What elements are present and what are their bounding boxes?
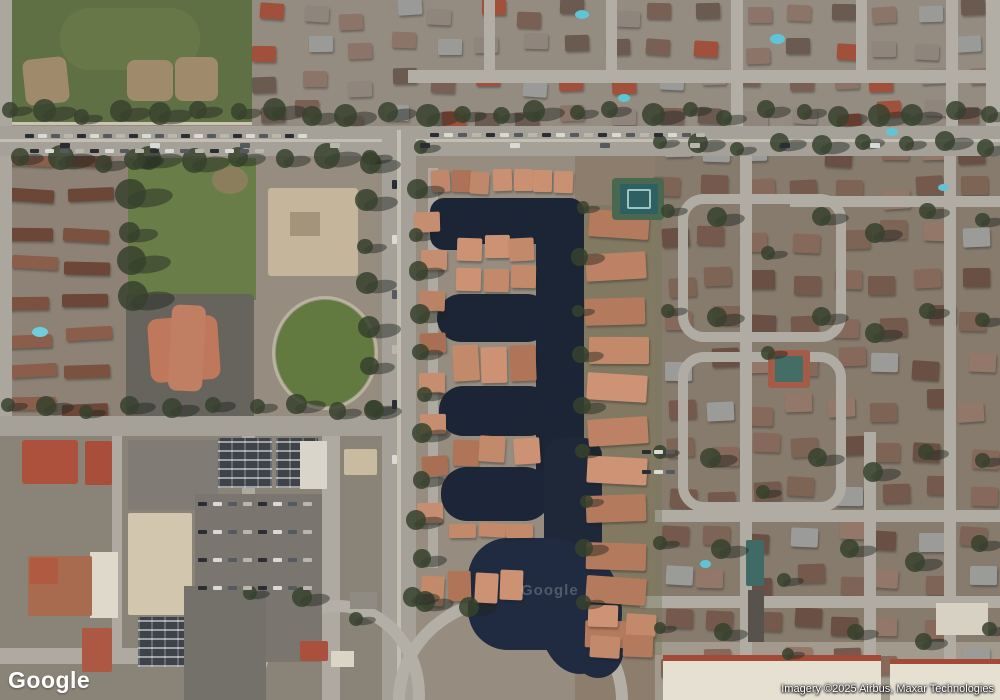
12-tree — [413, 549, 431, 567]
cars-main-road-traffic-car — [690, 143, 700, 148]
cars-road-east-row-car — [444, 133, 453, 137]
cars-road-east-row-car — [542, 133, 551, 137]
cars-field-parking-row-2-car — [180, 149, 189, 153]
cars-field-parking-row-1-car — [285, 134, 294, 138]
cars-parking-row-4-car — [273, 586, 282, 590]
27-tree — [716, 110, 732, 126]
right-res-houses-house — [868, 276, 895, 295]
7-tree — [360, 357, 378, 375]
red-roof-building-4 — [82, 628, 112, 672]
cars-main-road-traffic-car — [420, 143, 430, 148]
27-tree — [74, 109, 90, 125]
7-tree — [919, 303, 935, 319]
red-roof-building-3 — [30, 558, 58, 584]
top-street-v1 — [484, 0, 495, 70]
7-tree — [357, 239, 373, 255]
27-tree — [868, 104, 891, 127]
right-res-houses-house — [962, 228, 990, 248]
9-tree — [573, 397, 591, 415]
top-res-houses-house — [303, 70, 327, 86]
left-apartment-rows-house — [64, 365, 110, 379]
cars-vroad-traffic-car — [392, 400, 397, 409]
condo-row-north-house — [492, 168, 512, 191]
top-res-houses-house — [565, 34, 589, 51]
left-apartment-rows-house — [68, 187, 115, 202]
right-res-houses-house — [970, 566, 997, 585]
bigbox-store-roof — [128, 513, 192, 615]
left-apartment-rows-house — [63, 228, 110, 244]
tan-small-building — [344, 449, 377, 475]
pool-2 — [770, 34, 785, 44]
cars-parking-row-2-car — [273, 530, 282, 534]
top-res-houses-house — [872, 6, 897, 23]
parking-lot-c — [184, 586, 266, 700]
condo-col-east-house — [587, 416, 649, 447]
condo-row-north-house — [554, 171, 574, 194]
27-tree — [149, 102, 172, 125]
top-res-houses-house — [748, 7, 772, 23]
cars-road-east-row-car — [626, 133, 635, 137]
cars-road-east-row-car — [682, 133, 691, 137]
right-res-houses-house — [961, 176, 988, 195]
cars-parking-row-2-car — [258, 530, 267, 534]
condo-row-north-house — [470, 171, 490, 194]
cars-field-parking-row-1-car — [25, 134, 34, 138]
tennis-court-lines — [627, 189, 651, 209]
cars-road-east-row-car — [640, 133, 649, 137]
peninsula-4-houses-house — [449, 524, 476, 538]
top-res-houses-house — [339, 13, 364, 30]
cars-vroad-traffic-car — [392, 455, 397, 464]
27-tree — [601, 101, 618, 118]
12-tree — [409, 261, 428, 280]
condo-row-north-house — [514, 169, 533, 191]
cars-field-parking-row-1-car — [51, 134, 60, 138]
27-tree — [263, 98, 286, 121]
9-tree — [977, 139, 994, 156]
cars-parking-row-2-car — [213, 530, 222, 534]
5-tree — [403, 587, 422, 606]
top-street-v3 — [731, 0, 743, 128]
cars-field-parking-row-1-car — [207, 134, 216, 138]
cars-parking-row-1-car — [228, 502, 237, 506]
12-tree — [410, 304, 430, 324]
left-apartment-rows-house — [66, 325, 113, 341]
right-res-houses-house — [882, 483, 910, 503]
9-tree — [575, 539, 593, 557]
red-roof-building-1 — [22, 440, 78, 484]
cars-road-east-row-car — [598, 133, 607, 137]
cars-parking-row-4-car — [198, 586, 207, 590]
top-res-houses-house — [694, 41, 719, 58]
right-res-houses-house — [790, 527, 818, 547]
cars-field-parking-row-2-car — [195, 149, 204, 153]
cars-parking-row-1-car — [303, 502, 312, 506]
imagery-attribution: Imagery ©2025 Airbus, Maxar Technologies — [781, 683, 994, 695]
cars-road-east-row-car — [514, 133, 523, 137]
cars-main-road-traffic-car — [780, 143, 790, 148]
cars-parking-row-2-car — [303, 530, 312, 534]
right-res-houses-house — [956, 402, 984, 423]
cars-field-parking-row-1-car — [181, 134, 190, 138]
google-watermark: Google — [521, 582, 579, 599]
left-apartment-rows-house — [12, 255, 59, 270]
cars-road-east-row-car — [570, 133, 579, 137]
cars-field-parking-row-1-car — [298, 134, 307, 138]
cars-road-east-row-car — [528, 133, 537, 137]
5-tree — [349, 612, 363, 626]
cars-parking-row-3-car — [243, 558, 252, 562]
top-res-houses-house — [427, 8, 452, 25]
12-tree — [412, 344, 428, 360]
12-tree — [413, 471, 430, 488]
ring-pad-building-2 — [331, 651, 354, 667]
9-tree — [577, 201, 589, 213]
9-tree — [95, 155, 112, 172]
5-tree — [459, 597, 479, 617]
27-tree — [454, 106, 471, 123]
6-tree — [711, 539, 731, 559]
top-res-houses-house — [832, 3, 856, 19]
left-apartment-rows-house — [62, 294, 108, 308]
top-res-houses-house — [919, 6, 943, 23]
condo-col-east-house — [586, 456, 647, 486]
top-street-v2 — [606, 0, 617, 70]
cars-field-parking-row-1-car — [194, 134, 203, 138]
cars-field-parking-row-1-car — [129, 134, 138, 138]
cars-parking-row-1-car — [213, 502, 222, 506]
peninsula-1-houses-house — [456, 267, 481, 290]
solar-roof-block-1 — [218, 438, 272, 488]
condo-row-north-house — [533, 169, 552, 191]
cars-field-parking-row-2-car — [150, 149, 159, 153]
27-tree — [797, 104, 813, 120]
ring-pad-building-3 — [350, 592, 377, 609]
se-shore-condos-house — [589, 635, 620, 659]
cars-field-parking-row-1-car — [77, 134, 86, 138]
cars-field-parking-row-1-car — [246, 134, 255, 138]
red-roof-building-2 — [85, 441, 112, 485]
cars-field-parking-row-2-car — [240, 149, 249, 153]
7-tree — [865, 223, 885, 243]
lake-lobe-3 — [439, 386, 553, 436]
left-edge-street — [0, 0, 12, 436]
cars-main-road-traffic-car — [330, 143, 340, 148]
lake-lobe-4 — [441, 467, 551, 521]
7-tree — [756, 485, 770, 499]
cars-road-east-row-car — [472, 133, 481, 137]
cars-road-east-row-car — [430, 133, 439, 137]
cars-field-parking-row-2-car — [165, 149, 174, 153]
right-res-houses-house — [873, 443, 900, 462]
7-tree — [661, 204, 675, 218]
cars-field-parking-row-2-car — [90, 149, 99, 153]
cars-road-east-row-car — [612, 133, 621, 137]
cars-main-road-traffic-car — [60, 143, 70, 148]
ring-pad-building-1 — [300, 641, 328, 661]
9-tree — [855, 134, 871, 150]
peninsula-2-houses-house — [509, 345, 536, 382]
top-res-houses-house — [915, 43, 940, 60]
br-light-building — [936, 603, 988, 635]
top-res-houses-house — [645, 38, 670, 56]
cars-parking-row-4-car — [228, 586, 237, 590]
7-tree — [700, 448, 720, 468]
top-res-houses-house — [956, 35, 981, 52]
27-tree — [110, 100, 132, 122]
7-tree — [863, 462, 883, 482]
peninsula-1-houses-house — [484, 268, 510, 292]
cars-parking-row-3-car — [228, 558, 237, 562]
12-tree — [409, 228, 423, 242]
parked-car-column — [748, 590, 764, 642]
7-tree — [865, 323, 885, 343]
12-tree — [417, 387, 432, 402]
cars-right-lot-2-car — [666, 470, 675, 474]
tennis-court-east-inner — [775, 356, 803, 382]
9-tree — [276, 149, 295, 168]
cars-field-parking-row-1-car — [64, 134, 73, 138]
cars-field-parking-row-2-car — [120, 149, 129, 153]
cars-parking-row-3-car — [258, 558, 267, 562]
se-shore-condos-house — [625, 613, 656, 637]
cars-parking-row-1-car — [198, 502, 207, 506]
cars-right-lot-1-car — [642, 450, 651, 454]
cars-field-parking-row-2-car — [45, 149, 54, 153]
cars-road-east-row-car — [500, 133, 509, 137]
cars-field-parking-row-1-car — [168, 134, 177, 138]
sport-court-southeast — [746, 540, 764, 586]
cars-parking-row-4-car — [288, 586, 297, 590]
cars-field-parking-row-1-car — [272, 134, 281, 138]
cars-road-east-row-car — [696, 133, 705, 137]
top-res-houses-house — [745, 47, 770, 64]
cars-right-lot-1-car — [654, 450, 663, 454]
peninsula-4-houses-house — [478, 522, 506, 537]
top-res-houses-house — [348, 80, 373, 97]
cars-field-parking-row-1-car — [116, 134, 125, 138]
main-road-h-median — [0, 139, 1000, 142]
9-tree — [572, 346, 589, 363]
left-apartment-rows-house — [8, 187, 55, 203]
cars-field-parking-row-2-car — [225, 149, 234, 153]
cars-parking-row-3-car — [303, 558, 312, 562]
circular-park-path — [272, 296, 378, 410]
6-tree — [714, 623, 732, 641]
top-res-houses-house — [523, 33, 547, 50]
10-tree — [79, 405, 93, 419]
cars-parking-row-1-car — [288, 502, 297, 506]
top-res-houses-house — [309, 36, 333, 52]
cars-vroad-traffic-car — [392, 235, 397, 244]
pool-4 — [938, 184, 949, 191]
right-res-houses-house — [871, 352, 898, 372]
top-res-houses-house — [872, 41, 896, 57]
27-tree — [493, 107, 510, 124]
right-res-houses-house — [700, 175, 728, 195]
left-road-h416 — [0, 416, 384, 436]
left-apartment-rows-house — [7, 228, 53, 242]
cars-field-parking-row-2-car — [30, 149, 39, 153]
baseball-diamond-2 — [127, 60, 173, 101]
google-logo[interactable]: Google — [8, 667, 90, 694]
cars-right-lot-1-car — [666, 450, 675, 454]
peninsula-1-houses-house — [456, 238, 482, 262]
27-tree — [302, 106, 322, 126]
satellite-map-canvas[interactable]: Google Google Imagery ©2025 Airbus, Maxa… — [0, 0, 1000, 700]
top-res-houses-house — [397, 0, 422, 16]
pool-1 — [575, 10, 589, 19]
27-tree — [334, 104, 357, 127]
top-res-houses-house — [786, 38, 810, 54]
church-roof-wing — [168, 304, 206, 392]
cars-field-parking-row-2-car — [105, 149, 114, 153]
cars-road-east-row-car — [458, 133, 467, 137]
right-res-houses-house — [696, 569, 724, 589]
white-roof-roadside — [300, 441, 327, 489]
27-tree — [416, 104, 439, 127]
cars-road-east-row-car — [668, 133, 677, 137]
right-res-houses-house — [838, 347, 866, 367]
cars-field-parking-row-1-car — [142, 134, 151, 138]
cars-main-road-traffic-car — [510, 143, 520, 148]
se-shore-condos-house — [623, 634, 654, 657]
cars-parking-row-2-car — [243, 530, 252, 534]
cars-parking-row-3-car — [273, 558, 282, 562]
6-tree — [982, 622, 996, 636]
cars-vroad-traffic-car — [392, 180, 397, 189]
cars-main-road-traffic-car — [150, 143, 160, 148]
cars-parking-row-4-car — [258, 586, 267, 590]
top-res-houses-house — [787, 4, 812, 21]
left-apartment-rows-house — [6, 335, 52, 350]
cars-field-parking-row-2-car — [255, 149, 264, 153]
9-tree — [11, 148, 29, 166]
right-res-houses-house — [666, 565, 694, 585]
cars-field-parking-row-1-car — [233, 134, 242, 138]
right-res-houses-house — [968, 352, 996, 372]
right-res-houses-house — [870, 403, 897, 422]
cars-field-parking-row-2-car — [135, 149, 144, 153]
cars-parking-row-3-car — [213, 558, 222, 562]
cars-parking-row-3-car — [198, 558, 207, 562]
south-arc-condos-house — [474, 572, 499, 603]
peninsula-1-houses-house — [509, 238, 535, 262]
7-tree — [919, 203, 935, 219]
pool-5 — [32, 327, 48, 337]
cars-field-parking-row-2-car — [210, 149, 219, 153]
white-l-building — [90, 552, 118, 618]
27-tree — [189, 101, 207, 119]
top-res-houses-house — [252, 76, 277, 93]
5-tree — [119, 222, 140, 243]
cars-road-east-row-car — [584, 133, 593, 137]
peninsula-1-houses-house — [485, 235, 510, 258]
cars-parking-row-1-car — [258, 502, 267, 506]
7-tree — [356, 272, 378, 294]
27-tree — [683, 102, 698, 117]
pool-7 — [618, 94, 630, 102]
27-tree — [231, 103, 248, 120]
10-tree — [120, 396, 139, 415]
cars-parking-row-2-car — [198, 530, 207, 534]
top-res-houses-house — [304, 6, 329, 23]
cars-vroad-traffic-car — [392, 290, 397, 299]
top-res-houses-house — [517, 12, 542, 29]
cars-field-parking-row-1-car — [103, 134, 112, 138]
top-res-houses-house — [616, 11, 641, 28]
5-tree — [117, 246, 146, 275]
cars-main-road-traffic-car — [600, 143, 610, 148]
cars-right-lot-2-car — [642, 470, 651, 474]
10-tree — [250, 399, 265, 414]
top-res-houses-house — [961, 0, 986, 16]
27-tree — [523, 100, 545, 122]
5-tree — [115, 179, 145, 209]
top-res-houses-house — [438, 39, 462, 55]
cars-field-parking-row-1-car — [220, 134, 229, 138]
9-tree — [899, 136, 914, 151]
top-street-horizontal — [408, 70, 1000, 83]
peninsula-3-houses-house — [513, 437, 541, 465]
peninsula-3-houses-house — [478, 436, 506, 464]
7-tree — [362, 150, 378, 166]
10-tree — [329, 402, 346, 419]
right-res-houses-house — [794, 607, 822, 627]
top-res-houses-house — [259, 2, 284, 20]
cars-road-east-row-car — [486, 133, 495, 137]
7-tree — [661, 304, 675, 318]
cars-parking-row-1-car — [243, 502, 252, 506]
right-res-houses-house — [963, 268, 990, 287]
cars-parking-row-2-car — [288, 530, 297, 534]
pool-6 — [700, 560, 711, 568]
condo-col-east-house — [586, 372, 648, 403]
cars-main-road-traffic-car — [240, 143, 250, 148]
top-res-houses-house — [696, 2, 720, 19]
cars-main-road-traffic-car — [870, 143, 880, 148]
27-tree — [946, 101, 965, 120]
cars-field-parking-row-2-car — [60, 149, 69, 153]
cars-parking-row-2-car — [228, 530, 237, 534]
cars-field-parking-row-1-car — [259, 134, 268, 138]
cars-field-parking-row-1-car — [90, 134, 99, 138]
cars-field-parking-row-2-car — [75, 149, 84, 153]
pool-3 — [886, 128, 898, 136]
right-res-houses-house — [912, 360, 940, 381]
cars-road-east-row-car — [556, 133, 565, 137]
10-tree — [286, 394, 307, 415]
top-res-houses-house — [348, 42, 373, 59]
12-tree — [407, 179, 427, 199]
9-tree — [572, 305, 584, 317]
27-tree — [981, 106, 998, 123]
cars-parking-row-4-car — [303, 586, 312, 590]
27-tree — [2, 102, 18, 118]
top-street-v4 — [856, 0, 867, 70]
right-res-houses-house — [913, 268, 941, 288]
27-tree — [570, 105, 585, 120]
top-res-houses-house — [252, 45, 276, 61]
school-courtyard — [290, 212, 320, 236]
peninsula-2-houses-house — [452, 344, 480, 382]
7-tree — [355, 189, 378, 212]
peninsula-4-houses-house — [506, 523, 533, 537]
cars-parking-row-4-car — [243, 586, 252, 590]
9-tree — [575, 444, 589, 458]
6-tree — [971, 535, 987, 551]
10-tree — [1, 398, 15, 412]
